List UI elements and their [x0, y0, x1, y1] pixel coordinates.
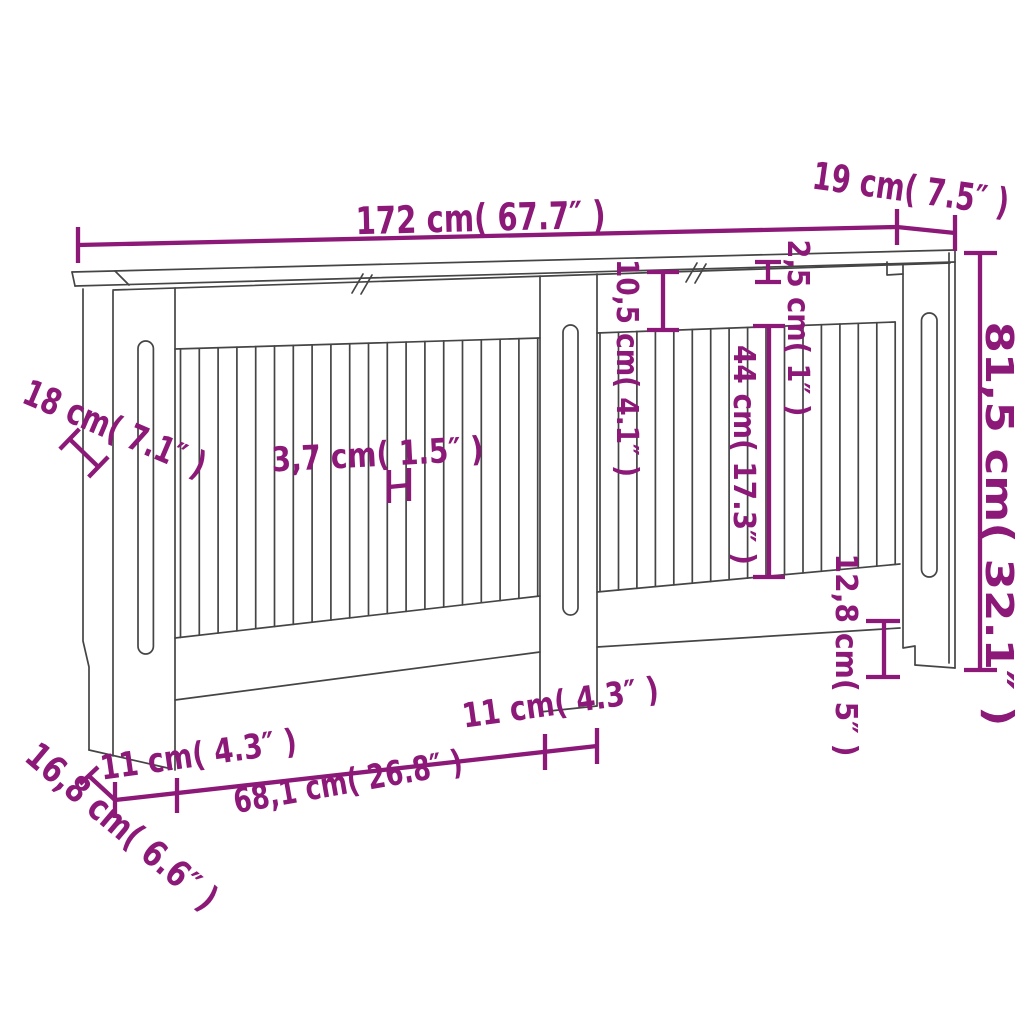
dim-slat-height-label: 44 cm( 17.3″ ): [726, 345, 761, 565]
dim-foot-height-label: 12,8 cm( 5″ ): [828, 554, 863, 757]
dim-center-post-width-label: 11 cm( 4.3″ ): [460, 670, 662, 737]
dim-top-thickness-line: [755, 262, 781, 282]
dim-top-thickness-label: 2,5 cm( 1″ ): [780, 240, 815, 417]
dim-total-width-label: 172 cm( 67.7″ ): [355, 193, 606, 244]
dim-total-height-label: 81,5 cm( 32.1″ ): [977, 322, 1021, 727]
center-post-slot: [563, 325, 578, 615]
dim-top-depth-line: [897, 215, 955, 251]
dim-top-rail-line: [647, 272, 679, 330]
right-post-slot: [922, 313, 938, 577]
joint-marks: [352, 263, 706, 294]
right-post: [887, 253, 955, 668]
dim-slat-width-label: 3,7 cm( 1.5″ ): [271, 429, 485, 480]
radiator-cover-dimension-diagram: 172 cm( 67.7″ ) 19 cm( 7.5″ ) 81,5 cm( 3…: [0, 0, 1024, 1024]
left-post: [83, 288, 175, 770]
dim-side-depth-label: 18 cm( 7.1″ ): [17, 372, 213, 486]
dim-top-rail-label: 10,5 cm( 4.1″ ): [609, 259, 644, 477]
left-post-slot: [138, 341, 153, 654]
dim-top-depth-label: 19 cm( 7.5″ ): [810, 154, 1012, 225]
center-post: [540, 274, 597, 712]
top-shelf: [72, 250, 955, 286]
